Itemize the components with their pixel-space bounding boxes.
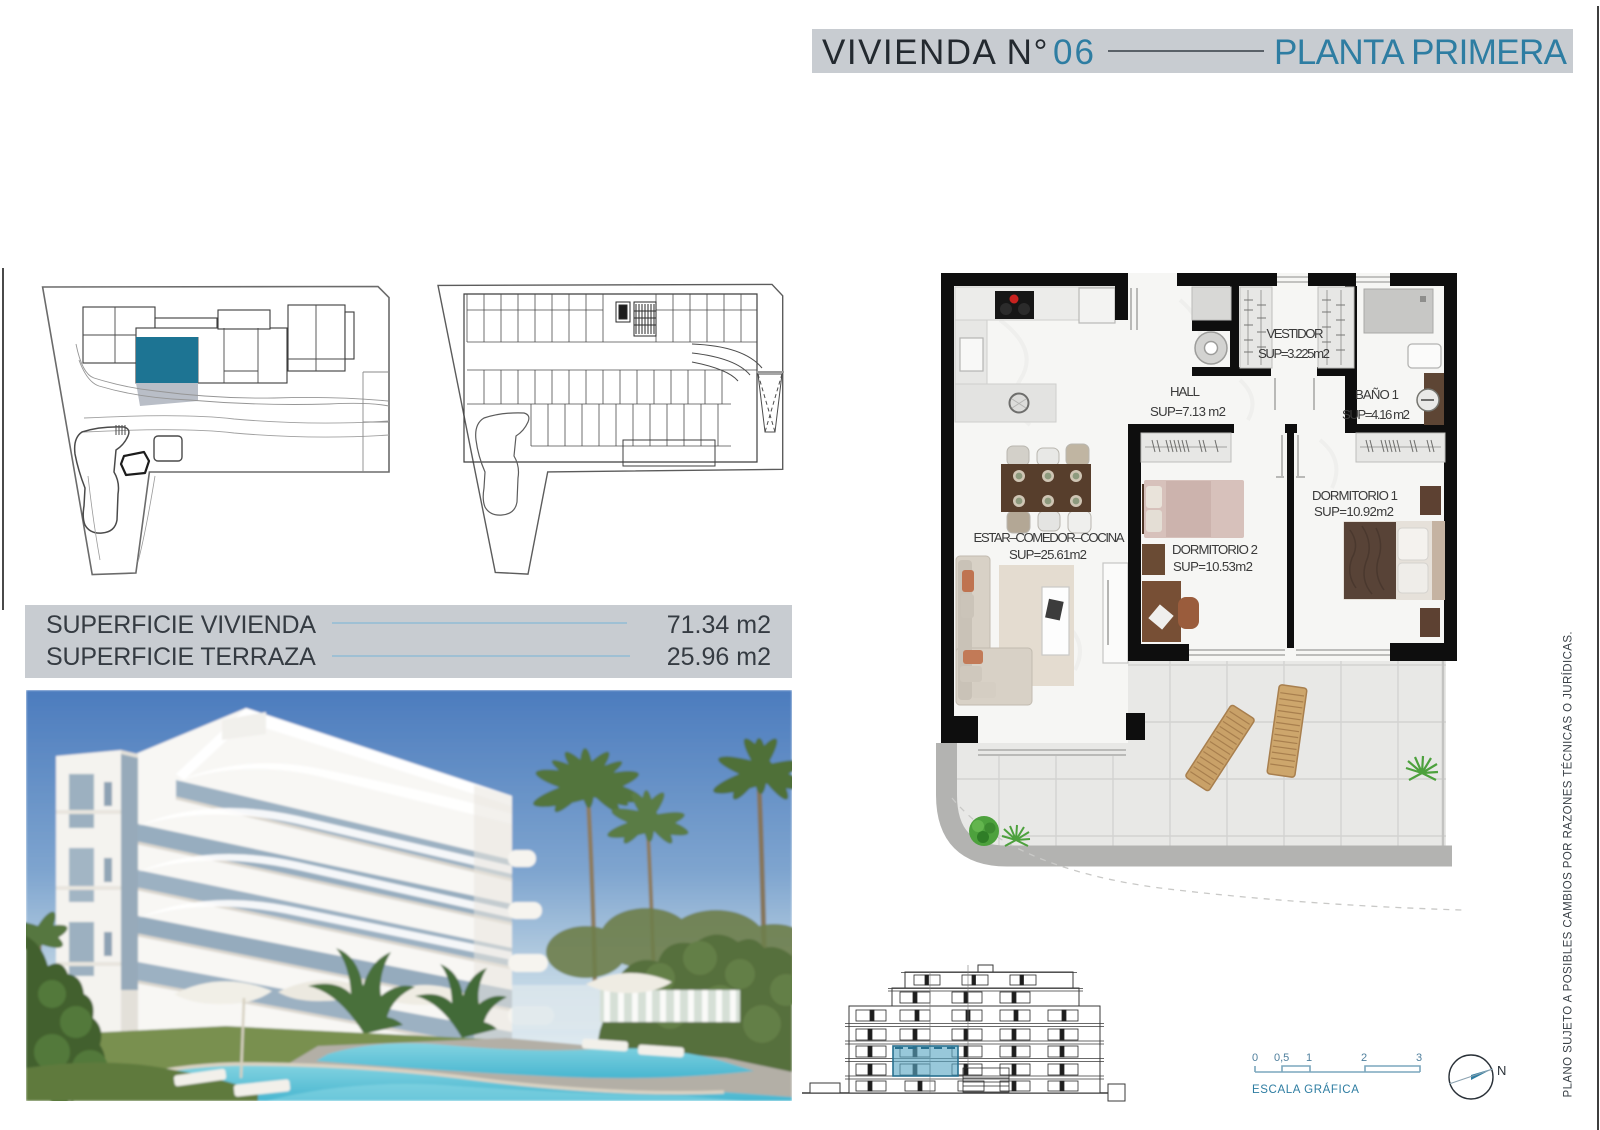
svg-text:0: 0	[1252, 1052, 1258, 1064]
svg-text:3: 3	[1416, 1052, 1422, 1064]
svg-text:SUP=10.53m2: SUP=10.53m2	[1173, 559, 1253, 574]
svg-text:SUP=3.225m2: SUP=3.225m2	[1258, 346, 1330, 361]
svg-text:1: 1	[1306, 1052, 1312, 1064]
svg-text:SUP=10.92m2: SUP=10.92m2	[1314, 504, 1394, 519]
svg-text:BAÑO 1: BAÑO 1	[1355, 387, 1399, 402]
svg-text:SUP=25.61m2: SUP=25.61m2	[1009, 547, 1087, 562]
svg-text:DORMITORIO 1: DORMITORIO 1	[1312, 488, 1398, 503]
svg-text:ESCALA GRÁFICA: ESCALA GRÁFICA	[1252, 1083, 1359, 1096]
svg-text:0,5: 0,5	[1274, 1052, 1289, 1064]
svg-text:HALL: HALL	[1170, 384, 1200, 399]
svg-text:N: N	[1497, 1063, 1506, 1078]
svg-text:SUP=7.13 m2: SUP=7.13 m2	[1150, 404, 1226, 419]
svg-text:SUP=4.16 m2: SUP=4.16 m2	[1342, 407, 1410, 422]
svg-text:VESTIDOR: VESTIDOR	[1267, 326, 1324, 341]
svg-text:2: 2	[1361, 1052, 1367, 1064]
svg-text:ESTAR–COMEDOR–COCINA: ESTAR–COMEDOR–COCINA	[974, 530, 1125, 545]
svg-text:DORMITORIO 2: DORMITORIO 2	[1172, 542, 1258, 557]
